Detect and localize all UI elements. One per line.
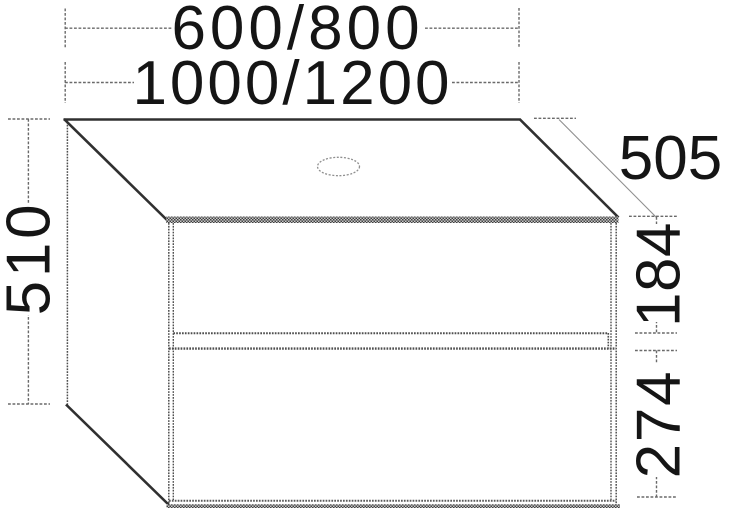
svg-text:1000/1200: 1000/1200	[132, 49, 452, 118]
svg-text:274: 274	[625, 370, 694, 479]
svg-text:510: 510	[0, 201, 64, 316]
svg-text:505: 505	[619, 124, 722, 193]
svg-text:184: 184	[625, 222, 694, 327]
